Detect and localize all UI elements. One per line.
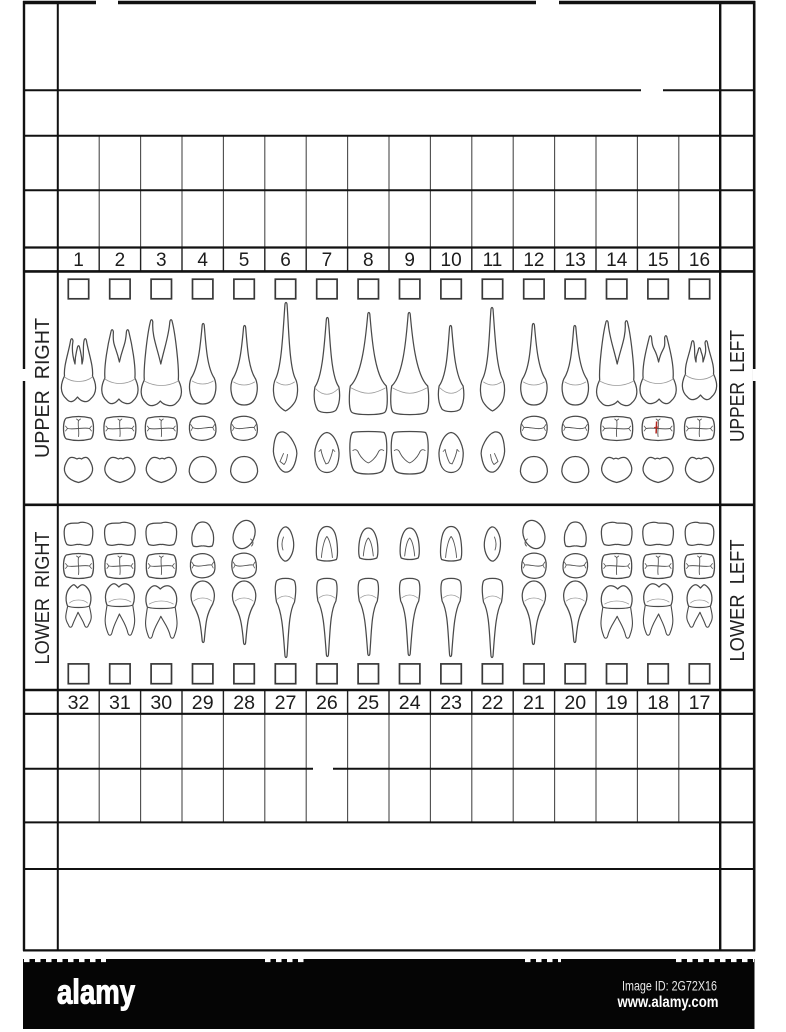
svg-text:21: 21 xyxy=(523,692,545,714)
svg-text:30: 30 xyxy=(150,692,172,714)
svg-text:19: 19 xyxy=(606,692,628,714)
svg-text:10: 10 xyxy=(441,250,462,271)
svg-text:31: 31 xyxy=(109,692,131,714)
svg-text:13: 13 xyxy=(565,250,586,271)
svg-text:11: 11 xyxy=(483,250,503,271)
svg-text:20: 20 xyxy=(564,692,586,714)
svg-text:7: 7 xyxy=(322,250,333,271)
svg-text:25: 25 xyxy=(357,692,379,714)
svg-text:UPPER RIGHT: UPPER RIGHT xyxy=(32,318,54,458)
svg-text:12: 12 xyxy=(523,250,544,271)
svg-text:LOWER RIGHT: LOWER RIGHT xyxy=(32,532,54,665)
svg-text:26: 26 xyxy=(316,692,338,714)
svg-text:3: 3 xyxy=(156,250,167,271)
svg-text:28: 28 xyxy=(233,692,255,714)
svg-text:18: 18 xyxy=(647,692,669,714)
svg-text:Image ID: 2G72X16: Image ID: 2G72X16 xyxy=(622,979,717,994)
svg-text:www.alamy.com: www.alamy.com xyxy=(617,994,719,1011)
svg-text:29: 29 xyxy=(192,692,214,714)
svg-text:alamy: alamy xyxy=(57,974,135,1012)
svg-text:27: 27 xyxy=(275,692,297,714)
svg-text:8: 8 xyxy=(363,250,374,271)
svg-text:24: 24 xyxy=(399,692,421,714)
svg-text:2: 2 xyxy=(115,250,126,271)
svg-text:16: 16 xyxy=(689,250,710,271)
svg-text:6: 6 xyxy=(280,250,291,271)
svg-text:17: 17 xyxy=(689,692,711,714)
svg-text:9: 9 xyxy=(404,250,415,271)
svg-text:LOWER LEFT: LOWER LEFT xyxy=(727,540,749,662)
svg-text:14: 14 xyxy=(606,250,628,271)
svg-text:22: 22 xyxy=(482,692,504,714)
svg-text:23: 23 xyxy=(440,692,462,714)
svg-text:32: 32 xyxy=(68,692,90,714)
svg-text:1: 1 xyxy=(73,250,84,271)
svg-text:4: 4 xyxy=(197,250,208,271)
svg-text:UPPER LEFT: UPPER LEFT xyxy=(727,330,749,442)
svg-text:15: 15 xyxy=(648,250,669,271)
svg-text:5: 5 xyxy=(239,250,250,271)
